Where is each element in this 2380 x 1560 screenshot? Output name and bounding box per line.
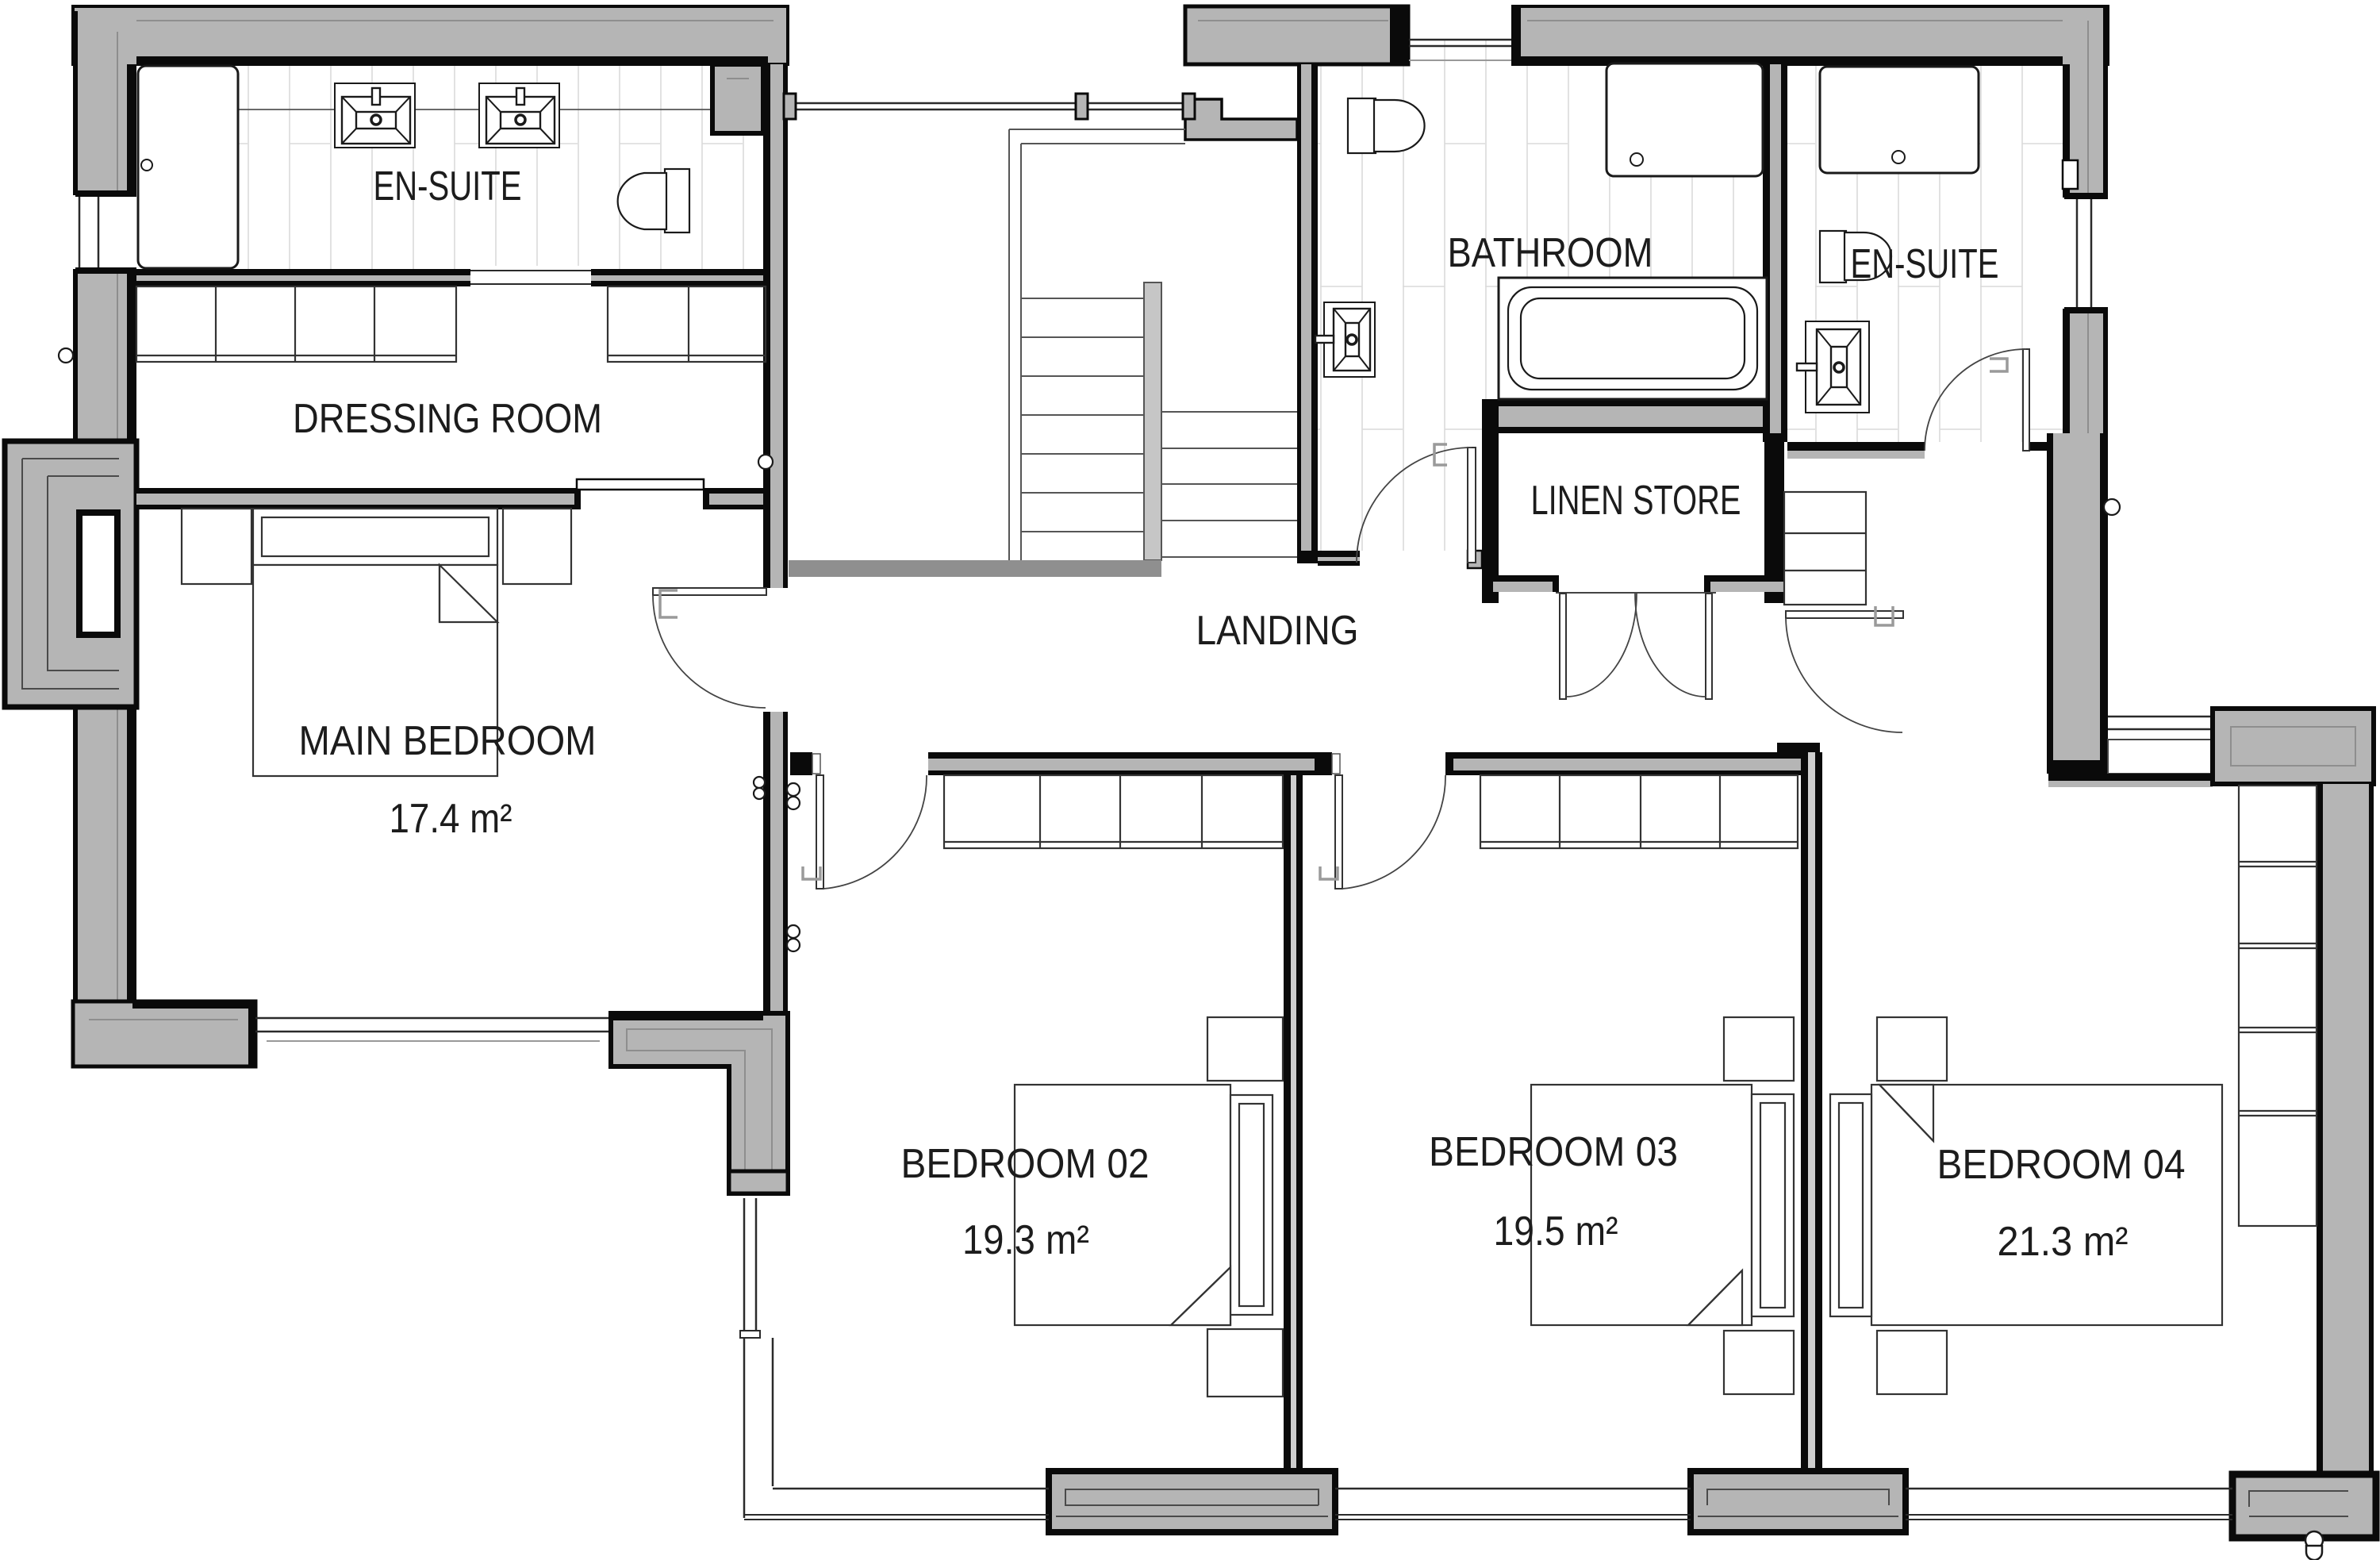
svg-text:LANDING: LANDING [1196,608,1359,654]
svg-text:19.3 m²: 19.3 m² [962,1217,1089,1263]
svg-text:BEDROOM 03: BEDROOM 03 [1429,1129,1678,1175]
svg-text:MAIN BEDROOM: MAIN BEDROOM [299,718,597,764]
svg-text:LINEN STORE: LINEN STORE [1531,478,1741,524]
svg-text:17.4 m²: 17.4 m² [390,796,512,842]
svg-text:BEDROOM 04: BEDROOM 04 [1937,1142,2186,1188]
svg-text:DRESSING ROOM: DRESSING ROOM [293,396,602,442]
svg-text:EN-SUITE: EN-SUITE [1851,241,1999,287]
svg-text:BEDROOM 02: BEDROOM 02 [901,1141,1150,1187]
svg-text:21.3 m²: 21.3 m² [1998,1219,2129,1265]
svg-text:BATHROOM: BATHROOM [1448,230,1653,276]
svg-text:19.5 m²: 19.5 m² [1494,1208,1618,1255]
svg-text:EN-SUITE: EN-SUITE [374,163,522,209]
